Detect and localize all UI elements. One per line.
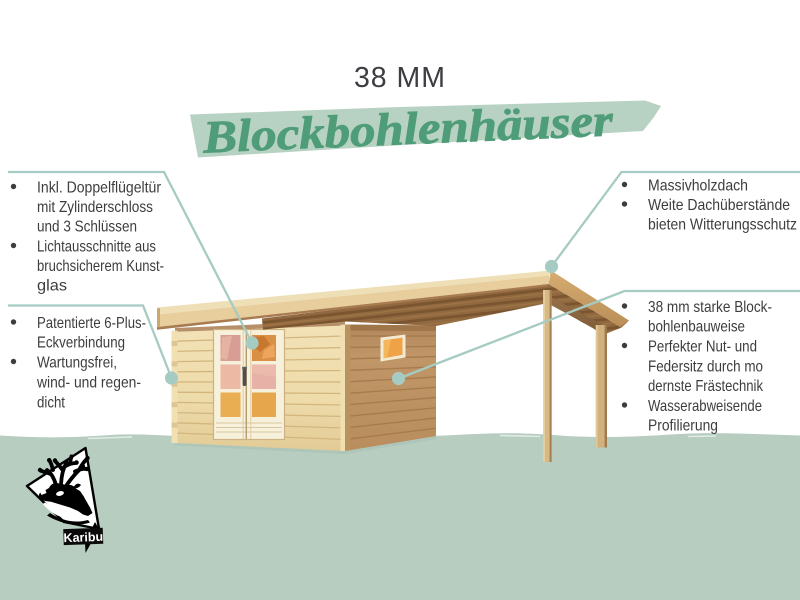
svg-text:Inkl. Doppelflügeltür: Inkl. Doppelflügeltür [37, 180, 161, 197]
svg-text:Wasserabweisende: Wasserabweisende [648, 398, 762, 415]
svg-text:Lichtausschnitte aus: Lichtausschnitte aus [37, 239, 156, 256]
svg-text:bohlenbauweise: bohlenbauweise [648, 319, 745, 336]
svg-text:dicht: dicht [37, 395, 66, 412]
svg-text:Federsitz durch mo: Federsitz durch mo [648, 359, 763, 376]
svg-text:mit Zylinderschloss: mit Zylinderschloss [37, 199, 153, 216]
svg-text:Weite Dachüberstände: Weite Dachüberstände [648, 197, 790, 214]
svg-text:38 mm starke Block-: 38 mm starke Block- [648, 299, 772, 316]
svg-text:Wartungsfrei,: Wartungsfrei, [37, 355, 117, 372]
svg-text:und 3 Schlüssen: und 3 Schlüssen [37, 219, 137, 236]
svg-text:Karibu: Karibu [63, 530, 103, 545]
svg-text:Perfekter Nut- und: Perfekter Nut- und [648, 339, 757, 356]
svg-text:38 MM: 38 MM [354, 62, 446, 94]
svg-text:bruchsicherem Kunst-: bruchsicherem Kunst- [37, 258, 164, 275]
svg-text:Patentierte 6-Plus-: Patentierte 6-Plus- [37, 315, 146, 332]
svg-text:Massivholzdach: Massivholzdach [648, 178, 748, 195]
svg-text:dernste Frästechnik: dernste Frästechnik [648, 378, 763, 395]
svg-text:Profilierung: Profilierung [648, 418, 718, 435]
svg-text:wind- und regen-: wind- und regen- [36, 375, 141, 392]
svg-text:Eckverbindung: Eckverbindung [37, 335, 125, 352]
svg-text:glas: glas [37, 278, 67, 295]
svg-text:bieten Witterungsschutz: bieten Witterungsschutz [648, 217, 797, 234]
